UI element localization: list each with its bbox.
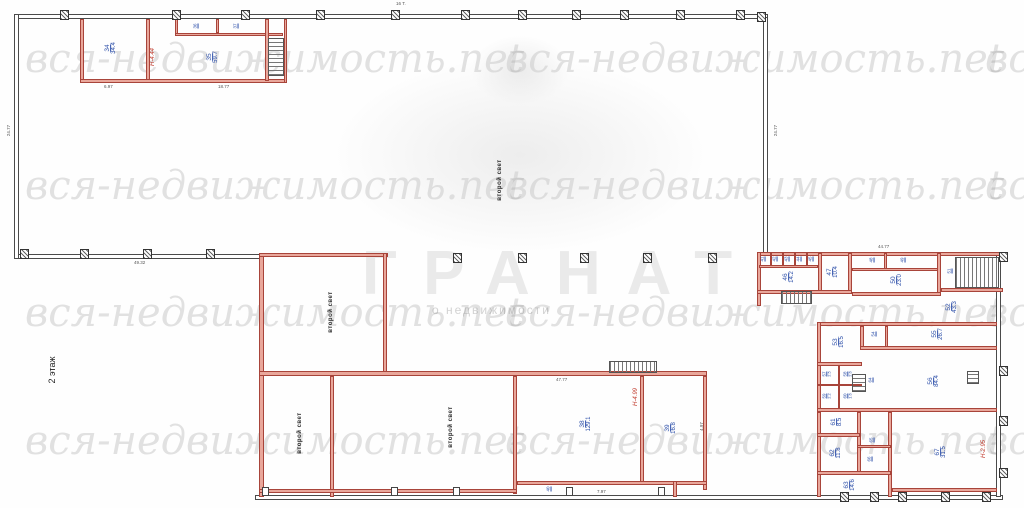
partition-wall xyxy=(80,79,287,83)
column-mark xyxy=(658,487,665,496)
room-area: 2.5 xyxy=(827,371,831,377)
column-mark xyxy=(736,10,745,20)
watermark-text: вся-недвижимость.net xyxy=(25,290,524,336)
staircase xyxy=(609,361,657,373)
dimension-label: 24.77 xyxy=(773,125,778,136)
room-number: 37 xyxy=(234,23,239,28)
room-label-67: 6731.5 xyxy=(934,446,948,458)
partition-wall xyxy=(848,253,852,294)
partition-wall xyxy=(517,481,707,485)
room-label-62: 6211.8 xyxy=(829,447,843,458)
room-number: 55 xyxy=(931,328,938,340)
column-mark xyxy=(172,10,181,20)
room-area: 84.4 xyxy=(934,375,941,387)
room-label-55: 5526.7 xyxy=(931,328,945,340)
column-mark xyxy=(676,10,685,20)
watermark-text: вся-недвижимость.net xyxy=(505,290,1004,336)
column-mark xyxy=(60,10,69,20)
column-mark xyxy=(518,253,527,263)
room-label-42: 42 xyxy=(773,256,778,261)
column-mark xyxy=(757,12,766,22)
column-mark xyxy=(999,416,1008,426)
room-label-40: 40 xyxy=(547,486,552,491)
open-space-label: второй свет xyxy=(448,406,454,447)
dimension-label: 7.97 xyxy=(597,489,606,494)
room-number: 43 xyxy=(785,256,790,261)
room-label-53: 5316.5 xyxy=(832,336,846,348)
partition-wall xyxy=(330,376,334,497)
partition-wall xyxy=(216,19,219,33)
partition-wall xyxy=(759,265,818,268)
column-mark xyxy=(391,487,398,496)
room-number: 65 xyxy=(870,437,875,442)
height-label: Н-4.44 xyxy=(150,48,156,66)
room-label-64: 64 xyxy=(869,377,874,382)
column-mark xyxy=(316,10,325,20)
room-area: 2.6 xyxy=(848,371,852,377)
room-number: 48 xyxy=(870,257,875,262)
partition-wall xyxy=(818,253,822,294)
column-mark xyxy=(20,249,29,259)
room-label-38: 38129.1 xyxy=(579,416,593,431)
column-mark xyxy=(518,10,527,20)
room-label-36: 36 xyxy=(194,23,199,28)
partition-wall xyxy=(884,253,887,269)
room-label-57: 572.5 xyxy=(822,371,831,377)
room-area: 26.7 xyxy=(938,328,945,340)
partition-wall xyxy=(673,481,677,497)
staircase xyxy=(955,257,999,288)
room-number: 61 xyxy=(830,418,837,426)
room-label-43: 43 xyxy=(785,256,790,261)
room-label-37: 37 xyxy=(234,23,239,28)
watermark-text: вся-недвижимость.net xyxy=(985,163,1024,209)
room-area: 14.2 xyxy=(789,271,796,283)
room-label-41: 41 xyxy=(761,256,766,261)
room-number: 54 xyxy=(872,331,877,336)
column-mark xyxy=(620,10,629,20)
partition-wall xyxy=(640,376,644,485)
floor-label: 2 этаж xyxy=(47,357,57,384)
room-number: 63 xyxy=(843,479,850,491)
column-mark xyxy=(840,492,849,502)
dimension-label: 24.77 xyxy=(6,125,11,136)
column-mark xyxy=(572,10,581,20)
room-area: 8.5 xyxy=(837,418,844,426)
room-number: 42 xyxy=(773,256,778,261)
column-mark xyxy=(143,249,152,259)
room-area: 10.4 xyxy=(833,266,840,278)
partition-wall xyxy=(817,408,997,412)
watermark-text: вся-недвижимость.net xyxy=(505,163,1004,209)
column-mark xyxy=(80,249,89,259)
outer-wall xyxy=(14,14,19,259)
room-label-48: 48 xyxy=(870,257,875,262)
room-area: 43.3 xyxy=(952,301,959,313)
column-mark xyxy=(708,253,717,263)
dimension-label: 47.77 xyxy=(556,377,567,382)
column-mark xyxy=(461,10,470,20)
partition-wall xyxy=(513,376,517,494)
room-area: 11.8 xyxy=(836,447,843,458)
column-mark xyxy=(391,10,400,20)
column-mark xyxy=(870,492,879,502)
room-number: 38 xyxy=(579,416,586,431)
partition-wall xyxy=(860,346,997,350)
room-label-60: 601.6 xyxy=(843,393,852,399)
room-area: 129.1 xyxy=(586,416,593,431)
dimension-label: 6.97 xyxy=(104,84,113,89)
partition-wall xyxy=(284,19,287,83)
room-label-58: 582.6 xyxy=(843,371,852,377)
room-area: 31.5 xyxy=(941,446,948,458)
column-mark xyxy=(262,487,269,496)
staircase xyxy=(268,38,284,76)
room-area: 14.6 xyxy=(850,479,857,491)
column-mark xyxy=(999,252,1008,262)
column-mark xyxy=(643,253,652,263)
partition-wall xyxy=(852,268,940,271)
room-label-35: 3559.7 xyxy=(206,51,220,63)
dimension-label: 16 Т. xyxy=(396,1,406,6)
room-label-65: 65 xyxy=(870,437,875,442)
room-area: 2.2 xyxy=(827,393,831,399)
room-area: 23.0 xyxy=(897,274,904,286)
watermark-text: вся-недвижимость.net xyxy=(25,163,524,209)
partition-wall xyxy=(80,19,84,83)
column-mark xyxy=(241,10,250,20)
partition-wall xyxy=(703,376,707,490)
staircase xyxy=(852,374,866,392)
room-number: 49 xyxy=(901,257,906,262)
partition-wall xyxy=(852,292,941,296)
room-number: 67 xyxy=(934,446,941,458)
column-mark xyxy=(580,253,589,263)
staircase xyxy=(967,371,979,384)
room-number: 39 xyxy=(664,422,671,434)
dimension-label: 49.32 xyxy=(134,260,145,265)
watermark-text: вся-недвижимость.net xyxy=(985,290,1024,336)
column-mark xyxy=(566,487,573,496)
agency-logo-text: ГРАНАТ xyxy=(362,238,758,309)
room-number: 46 xyxy=(782,271,789,283)
column-mark xyxy=(941,492,950,502)
room-number: 35 xyxy=(206,51,213,63)
room-number: 34 xyxy=(104,42,111,54)
partition-wall xyxy=(888,412,892,497)
room-label-46: 4614.2 xyxy=(782,271,796,283)
partition-wall xyxy=(383,253,387,374)
room-label-50: 5023.0 xyxy=(890,274,904,286)
room-number: 51 xyxy=(948,268,953,273)
room-number: 56 xyxy=(927,375,934,387)
room-label-66: 66 xyxy=(868,456,873,461)
room-number: 62 xyxy=(829,447,836,458)
outer-wall xyxy=(763,17,768,254)
open-space-label: второй свет xyxy=(497,159,503,200)
partition-wall xyxy=(817,471,891,475)
column-mark xyxy=(982,492,991,502)
room-number: 36 xyxy=(194,23,199,28)
partition-wall xyxy=(817,433,860,437)
room-area: 59.7 xyxy=(213,51,220,63)
room-number: 45 xyxy=(809,256,814,261)
partition-wall xyxy=(857,445,891,448)
room-label-52: 5243.3 xyxy=(945,301,959,313)
room-label-63: 6314.6 xyxy=(843,479,857,491)
open-space-label: второй свет xyxy=(297,412,303,453)
column-mark xyxy=(206,249,215,259)
pomegranate-logo-blob xyxy=(330,55,710,255)
room-area: 34.4 xyxy=(111,42,118,54)
room-area: 16.8 xyxy=(671,422,678,434)
column-mark xyxy=(999,468,1008,478)
room-number: 40 xyxy=(547,486,552,491)
dimension-label: 44.77 xyxy=(878,244,889,249)
room-number: 52 xyxy=(945,301,952,313)
outer-wall xyxy=(18,254,263,259)
room-number: 53 xyxy=(832,336,839,348)
partition-wall xyxy=(838,366,840,410)
room-label-45: 45 xyxy=(809,256,814,261)
room-label-61: 618.5 xyxy=(830,418,844,426)
room-label-49: 49 xyxy=(901,257,906,262)
room-label-47: 4710.4 xyxy=(826,266,840,278)
height-label: Н-4.99 xyxy=(633,388,639,406)
floor-plan: вся-недвижимость.netвся-недвижимость.net… xyxy=(0,0,1024,508)
room-number: 41 xyxy=(761,256,766,261)
room-number: 47 xyxy=(826,266,833,278)
column-mark xyxy=(453,487,460,496)
room-number: 66 xyxy=(868,456,873,461)
room-label-56: 5684.4 xyxy=(927,375,941,387)
watermark-text: вся-недвижимость.net xyxy=(505,36,1004,82)
column-mark xyxy=(999,366,1008,376)
room-number: 64 xyxy=(869,377,874,382)
room-label-34: 3434.4 xyxy=(104,42,118,54)
column-mark xyxy=(453,253,462,263)
partition-wall xyxy=(941,288,1003,292)
staircase xyxy=(781,291,812,304)
dimension-label: 18.77 xyxy=(218,84,229,89)
room-area: 16.5 xyxy=(839,336,846,348)
partition-wall xyxy=(857,412,861,474)
watermark-text: вся-недвижимость.net xyxy=(985,36,1024,82)
partition-wall xyxy=(817,322,997,326)
room-number: 44 xyxy=(797,256,802,261)
pomegranate-logo-crown xyxy=(470,35,570,105)
room-label-51: 51 xyxy=(948,268,953,273)
partition-wall xyxy=(259,253,388,257)
partition-wall xyxy=(817,412,821,497)
room-area: 1.6 xyxy=(848,393,852,399)
column-mark xyxy=(898,492,907,502)
open-space-label: второй свет xyxy=(328,291,334,332)
dimension-label: 4.97 xyxy=(699,422,704,431)
room-label-59: 592.2 xyxy=(822,393,831,399)
room-number: 50 xyxy=(890,274,897,286)
room-label-54: 54 xyxy=(872,331,877,336)
room-label-39: 3916.8 xyxy=(664,422,678,434)
partition-wall xyxy=(259,489,517,493)
height-label: Н-2.95 xyxy=(981,440,987,458)
agency-logo-subtext: о недвижимости xyxy=(432,303,551,317)
room-label-44: 44 xyxy=(797,256,802,261)
